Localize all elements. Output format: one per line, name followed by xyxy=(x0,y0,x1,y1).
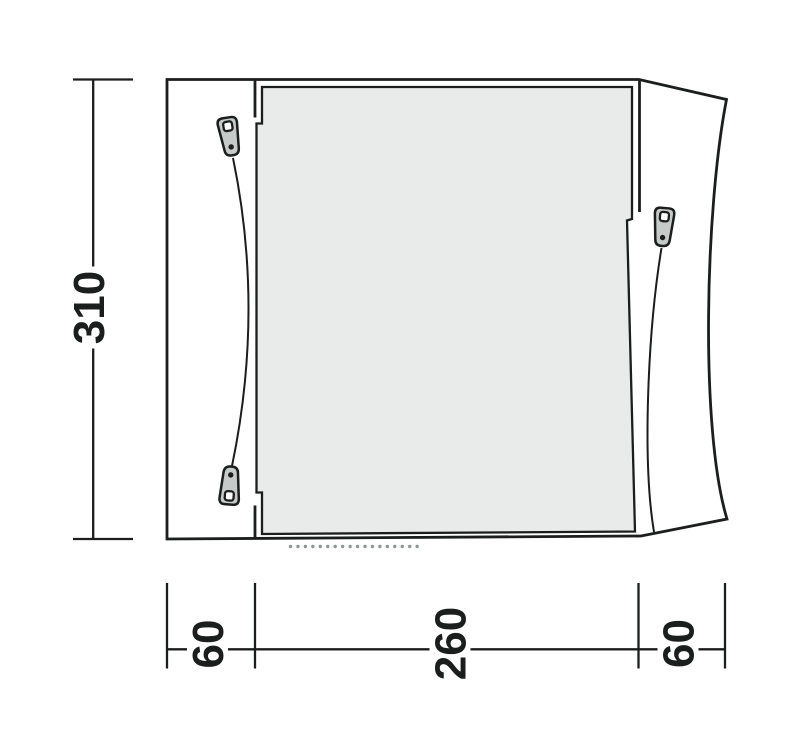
center-width-dimension-label: 260 xyxy=(427,607,476,680)
inner-groundsheet-panel xyxy=(257,87,636,534)
left-porch-dimension-label: 60 xyxy=(184,620,233,669)
height-dimension: 310 xyxy=(65,80,133,540)
height-dimension-label: 310 xyxy=(65,271,114,344)
zipper-pull-bottom-left-icon xyxy=(219,466,241,505)
width-dimensions: 60 260 60 xyxy=(167,583,725,685)
right-porch-dimension-label: 60 xyxy=(655,619,704,668)
tent-floorplan-diagram: 310 60 260 60 xyxy=(0,0,800,732)
